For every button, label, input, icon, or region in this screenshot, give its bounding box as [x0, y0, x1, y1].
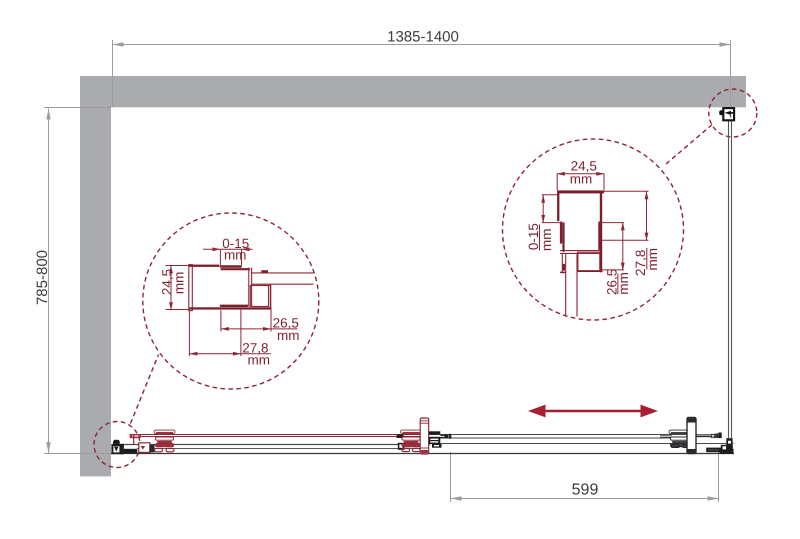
svg-text:mm: mm: [539, 229, 554, 252]
svg-text:mm: mm: [171, 272, 186, 295]
svg-text:mm: mm: [277, 328, 300, 343]
svg-text:1385-1400: 1385-1400: [387, 29, 459, 46]
svg-text:mm: mm: [224, 248, 247, 263]
svg-text:mm: mm: [645, 248, 660, 271]
svg-text:599: 599: [572, 482, 599, 499]
svg-text:mm: mm: [570, 172, 593, 187]
svg-text:mm: mm: [248, 352, 271, 367]
svg-text:785-800: 785-800: [34, 250, 51, 305]
